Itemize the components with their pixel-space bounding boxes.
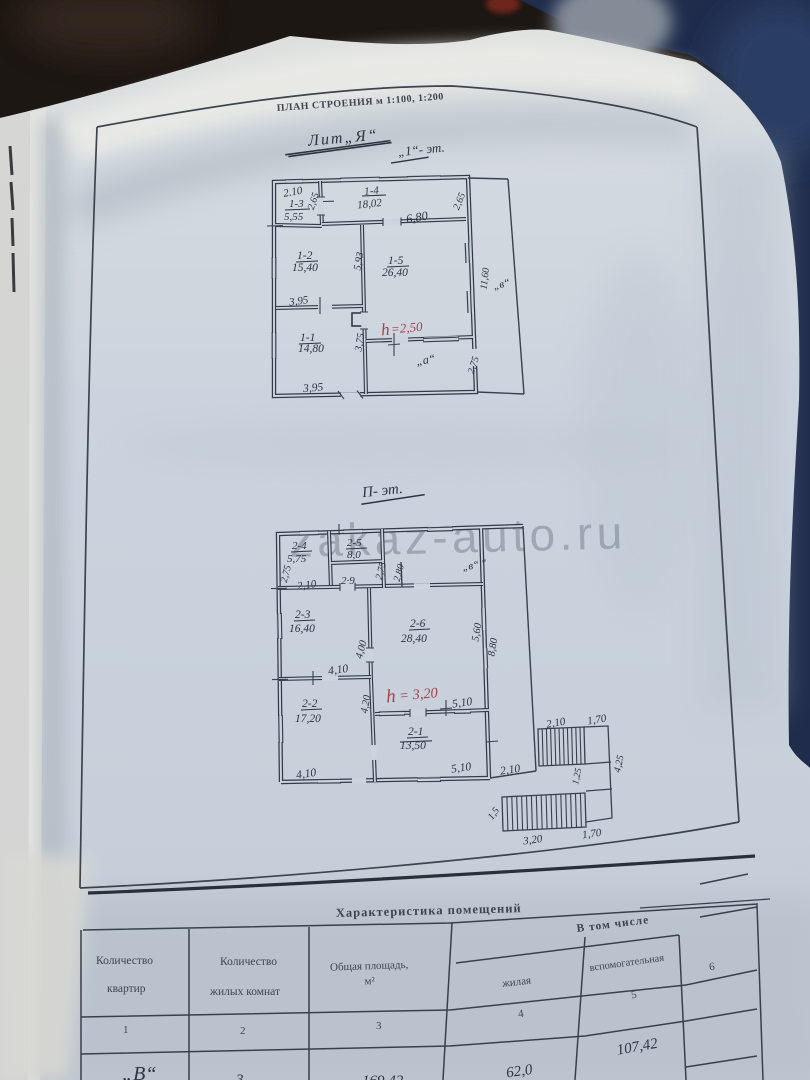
svg-text:1-2: 1-2 — [297, 250, 313, 262]
svg-text:2: 2 — [240, 1025, 246, 1037]
svg-text:17,20: 17,20 — [295, 713, 321, 725]
svg-text:1-5: 1-5 — [388, 255, 404, 267]
svg-text:1: 1 — [123, 1024, 129, 1036]
svg-text:Количество: Количество — [220, 956, 277, 968]
svg-text:5,75: 5,75 — [287, 553, 307, 565]
svg-text:h: h — [385, 686, 396, 708]
svg-text:3: 3 — [376, 1020, 382, 1032]
svg-text:3: 3 — [235, 1072, 244, 1080]
svg-text:15,40: 15,40 — [292, 262, 318, 274]
svg-text:8,0: 8,0 — [347, 549, 361, 561]
svg-text:5,55: 5,55 — [284, 211, 304, 223]
svg-text:2-4: 2-4 — [292, 540, 307, 552]
svg-text:2·9: 2·9 — [341, 575, 355, 587]
svg-text:zakaz-auto.ru: zakaz-auto.ru — [289, 506, 627, 567]
svg-text:169,42: 169,42 — [362, 1073, 404, 1080]
svg-text:h: h — [380, 320, 390, 340]
svg-text:14,80: 14,80 — [298, 343, 324, 355]
svg-text:28,40: 28,40 — [401, 633, 427, 645]
svg-text:62,0: 62,0 — [505, 1062, 534, 1080]
svg-text:1-3: 1-3 — [289, 198, 304, 210]
svg-text:26,40: 26,40 — [382, 267, 408, 279]
svg-text:жилых комнат: жилых комнат — [209, 986, 280, 998]
svg-text:„В“: „В“ — [122, 1063, 156, 1080]
svg-text:2-6: 2-6 — [410, 618, 426, 630]
svg-text:2-5: 2-5 — [347, 537, 362, 549]
svg-text:2-1: 2-1 — [408, 726, 423, 738]
svg-text:квартир: квартир — [107, 983, 146, 995]
svg-text:=2,50: =2,50 — [390, 319, 423, 337]
svg-text:Количество: Количество — [96, 955, 153, 967]
svg-text:2-3: 2-3 — [295, 609, 311, 621]
svg-text:16,40: 16,40 — [289, 623, 315, 635]
svg-text:3,95: 3,95 — [302, 381, 324, 395]
svg-text:2-2: 2-2 — [302, 698, 318, 710]
svg-text:м²: м² — [364, 975, 375, 987]
